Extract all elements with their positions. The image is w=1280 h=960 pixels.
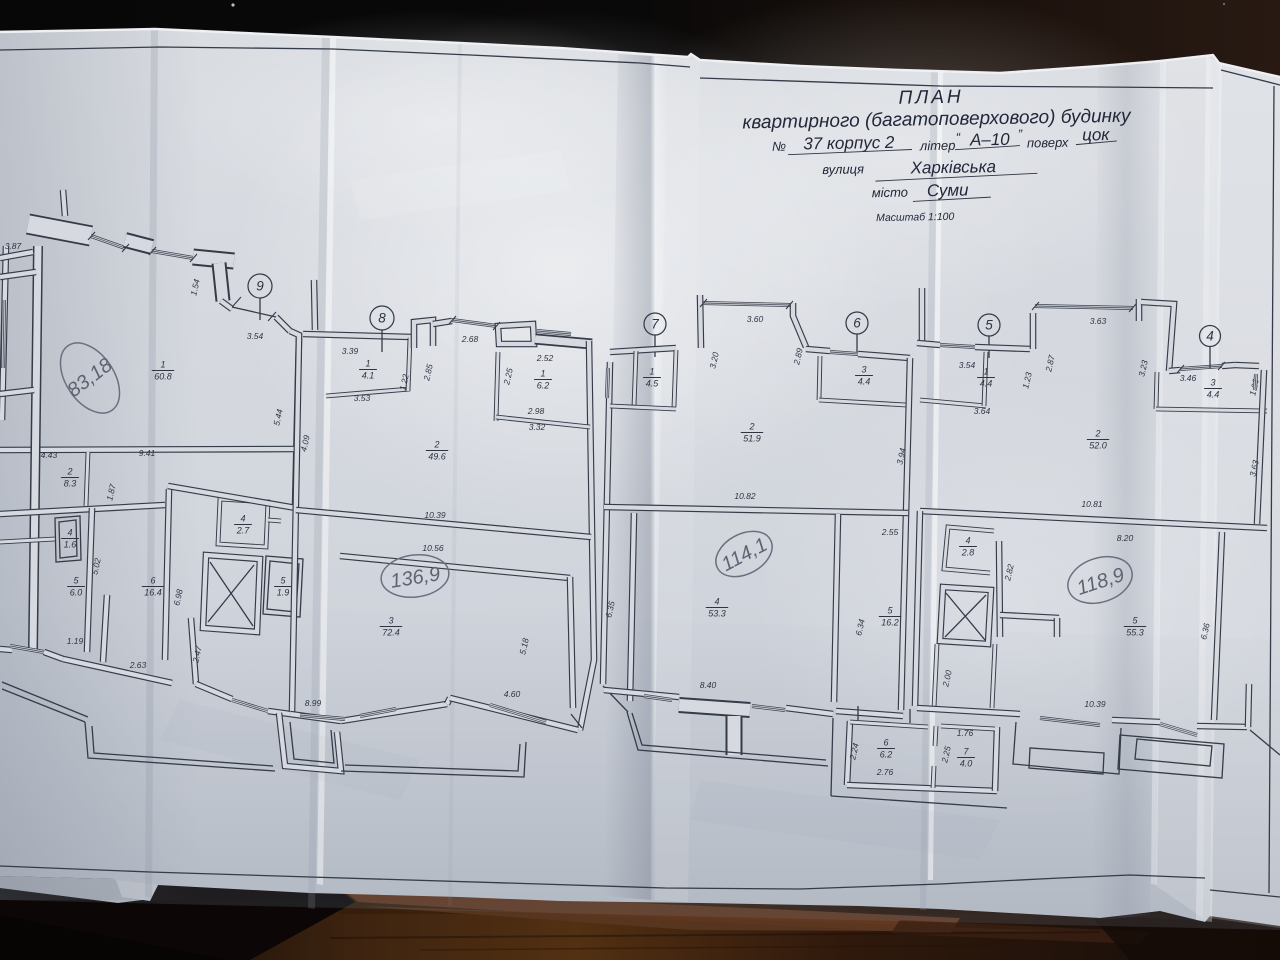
svg-text:3.63: 3.63 <box>1090 316 1107 326</box>
svg-text:Суми: Суми <box>927 180 970 200</box>
svg-text:1: 1 <box>365 359 370 369</box>
svg-text:1.9: 1.9 <box>277 588 290 598</box>
svg-text:3.32: 3.32 <box>529 422 546 432</box>
svg-text:2: 2 <box>748 422 754 432</box>
svg-text:вулиця: вулиця <box>822 161 864 177</box>
svg-text:поверх: поверх <box>1027 135 1069 151</box>
svg-text:2: 2 <box>66 467 72 477</box>
svg-text:4: 4 <box>965 536 970 546</box>
svg-text:6.2: 6.2 <box>537 381 550 391</box>
svg-text:1: 1 <box>649 367 654 377</box>
svg-text:5: 5 <box>985 318 993 333</box>
svg-text:№: № <box>772 139 786 154</box>
svg-text:3.64: 3.64 <box>974 406 991 416</box>
svg-text:4.0: 4.0 <box>960 759 973 769</box>
svg-text:8.3: 8.3 <box>64 479 77 489</box>
svg-text:49.6: 49.6 <box>428 452 446 462</box>
svg-text:4.4: 4.4 <box>858 377 871 387</box>
svg-text:4.1: 4.1 <box>362 371 375 381</box>
svg-text:2: 2 <box>1094 429 1100 439</box>
svg-text:3: 3 <box>388 616 393 626</box>
svg-text:3.53: 3.53 <box>354 393 371 403</box>
svg-text:4: 4 <box>714 597 719 607</box>
svg-text:4.5: 4.5 <box>646 379 660 389</box>
svg-text:37 корпус 2: 37 корпус 2 <box>803 133 895 154</box>
svg-text:2.52: 2.52 <box>536 353 554 363</box>
svg-text:3.87: 3.87 <box>5 241 22 251</box>
svg-text:3: 3 <box>1210 378 1215 388</box>
svg-text:16.2: 16.2 <box>881 618 899 628</box>
svg-text:1: 1 <box>540 369 545 379</box>
svg-text:7: 7 <box>651 317 659 332</box>
svg-text:1.6: 1.6 <box>64 540 77 550</box>
svg-text:4.4: 4.4 <box>980 379 993 389</box>
svg-text:2: 2 <box>433 440 439 450</box>
svg-text:4.43: 4.43 <box>41 450 58 460</box>
svg-text:3.54: 3.54 <box>247 331 264 341</box>
svg-text:3.39: 3.39 <box>342 346 359 356</box>
svg-text:3.60: 3.60 <box>747 314 764 324</box>
svg-text:10.56: 10.56 <box>422 543 444 553</box>
svg-text:1: 1 <box>160 360 165 370</box>
svg-text:6: 6 <box>150 576 155 586</box>
svg-text:8: 8 <box>378 311 386 326</box>
svg-text:3.46: 3.46 <box>1180 373 1197 383</box>
svg-text:2.98: 2.98 <box>527 406 545 416</box>
svg-text:60.8: 60.8 <box>154 372 172 382</box>
svg-text:9: 9 <box>256 279 264 294</box>
svg-text:6: 6 <box>883 738 888 748</box>
svg-text:2.55: 2.55 <box>881 527 899 537</box>
svg-text:2.76: 2.76 <box>876 767 894 777</box>
svg-text:51.9: 51.9 <box>743 434 761 444</box>
svg-text:8.20: 8.20 <box>1117 533 1134 543</box>
svg-text:1.19: 1.19 <box>67 636 84 646</box>
svg-text:2.7: 2.7 <box>236 526 251 536</box>
svg-text:4: 4 <box>1206 329 1214 344</box>
svg-text:52.0: 52.0 <box>1089 441 1107 451</box>
svg-text:10.82: 10.82 <box>734 491 756 501</box>
svg-text:2.68: 2.68 <box>461 334 479 344</box>
svg-text:4: 4 <box>67 528 72 538</box>
svg-text:8.99: 8.99 <box>305 698 322 708</box>
svg-text:53.3: 53.3 <box>708 609 726 619</box>
svg-text:6.0: 6.0 <box>70 588 83 598</box>
svg-text:літер: літер <box>919 138 956 154</box>
svg-text:9.41: 9.41 <box>139 448 156 458</box>
svg-text:72.4: 72.4 <box>382 628 400 638</box>
svg-text:Масштаб 1:100: Масштаб 1:100 <box>876 211 955 224</box>
svg-text:16.4: 16.4 <box>144 588 162 598</box>
svg-text:Харківська: Харківська <box>909 157 996 178</box>
svg-text:2.63: 2.63 <box>129 660 147 670</box>
svg-text:2.8: 2.8 <box>961 548 975 558</box>
svg-text:4.4: 4.4 <box>1207 390 1220 400</box>
svg-text:6: 6 <box>853 316 861 331</box>
svg-text:10.81: 10.81 <box>1081 499 1103 509</box>
svg-text:8.40: 8.40 <box>700 680 717 690</box>
svg-text:1.76: 1.76 <box>957 728 974 738</box>
svg-text:ПЛАН: ПЛАН <box>898 87 964 109</box>
svg-text:місто: місто <box>872 185 908 201</box>
svg-text:4: 4 <box>240 514 245 524</box>
svg-text:6.2: 6.2 <box>880 750 893 760</box>
svg-text:1: 1 <box>983 367 988 377</box>
svg-text:10.39: 10.39 <box>1084 699 1106 709</box>
svg-text:3.54: 3.54 <box>959 360 976 370</box>
svg-text:4.60: 4.60 <box>504 689 521 699</box>
svg-text:55.3: 55.3 <box>1126 628 1144 638</box>
svg-text:3: 3 <box>861 365 866 375</box>
svg-text:10.39: 10.39 <box>424 510 446 520</box>
